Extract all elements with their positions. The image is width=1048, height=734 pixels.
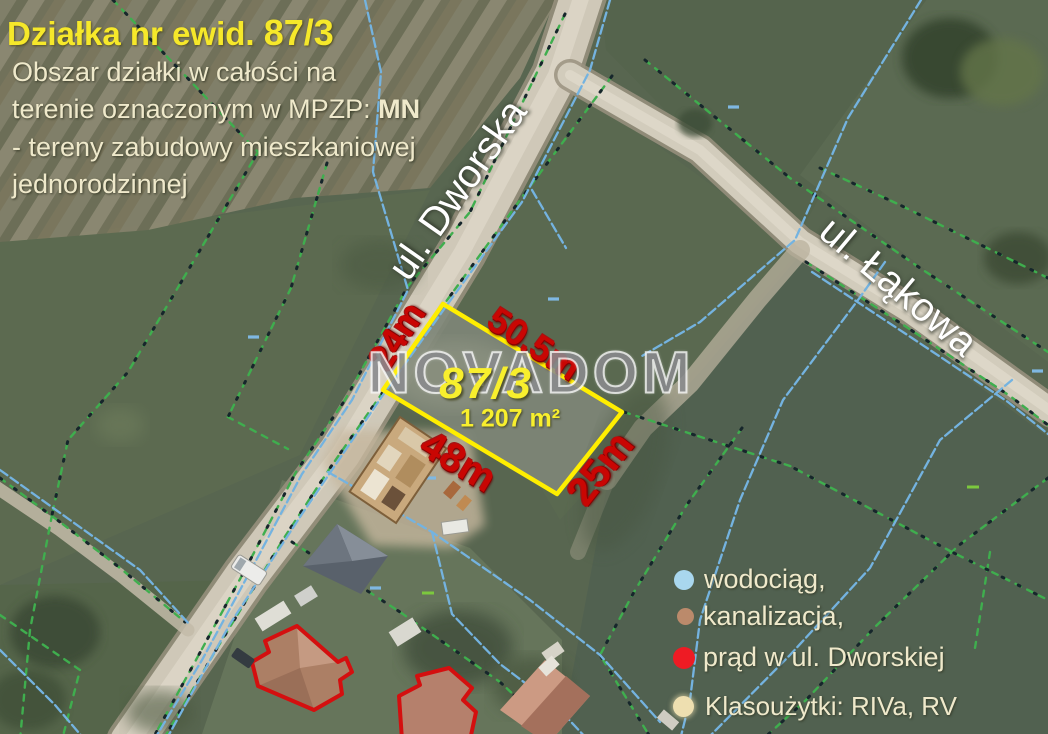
description-line-2: terenie oznaczonym w MPZP: MN bbox=[12, 94, 420, 125]
parcel-number-label: 87/3 bbox=[439, 359, 533, 409]
aerial-map: ul. Dworska ul. Łąkowa 24m 50.5m 48m 25m… bbox=[0, 0, 1048, 734]
legend-label-wodociag: wodociąg, bbox=[704, 564, 826, 595]
legend-label-kanalizacja: kanalizacja, bbox=[703, 601, 844, 632]
legend-label-klasouzytki: Klasoużytki: RIVa, RV bbox=[705, 691, 957, 722]
title-parcel-number: 87/3 bbox=[264, 12, 334, 53]
parcel-area-label: 1 207 m² bbox=[460, 405, 560, 434]
legend-dot-klasouzytki bbox=[673, 696, 694, 717]
page-title: Działka nr ewid. 87/3 bbox=[7, 12, 334, 54]
description-line-4: jednorodzinnej bbox=[12, 169, 188, 200]
legend-dot-prad bbox=[673, 647, 695, 669]
legend-dot-kanalizacja bbox=[677, 608, 694, 625]
title-text: Działka nr ewid. bbox=[7, 15, 264, 52]
description-line-1: Obszar działki w całości na bbox=[12, 57, 336, 88]
mpzp-zone-code: MN bbox=[378, 94, 420, 124]
description-line-3: - tereny zabudowy mieszkaniowej bbox=[12, 132, 416, 163]
legend-dot-wodociag bbox=[674, 570, 694, 590]
legend-label-prad: prąd w ul. Dworskiej bbox=[703, 642, 945, 673]
